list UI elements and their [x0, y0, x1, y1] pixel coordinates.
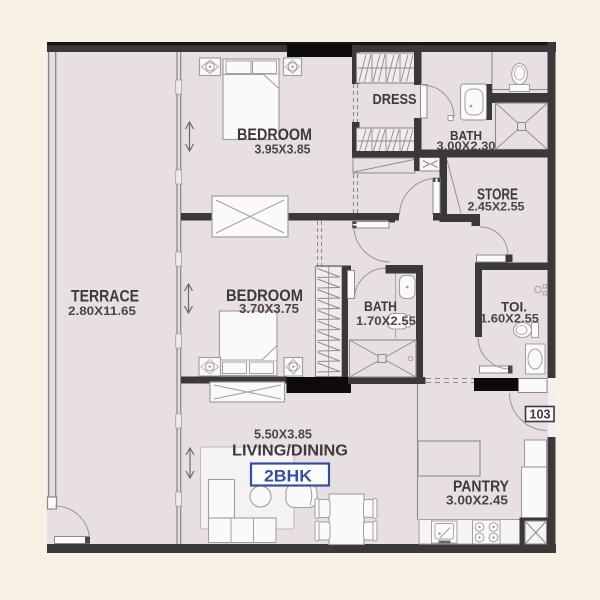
- svg-text:TOI.: TOI.: [501, 298, 527, 314]
- svg-text:3.95X3.85: 3.95X3.85: [255, 142, 311, 156]
- svg-text:BATH: BATH: [364, 298, 397, 314]
- svg-text:TERRACE: TERRACE: [71, 287, 139, 305]
- svg-text:LIVING/DINING: LIVING/DINING: [232, 443, 348, 460]
- svg-text:BEDROOM: BEDROOM: [237, 125, 312, 144]
- svg-text:3.70X3.75: 3.70X3.75: [239, 302, 299, 316]
- svg-text:1.60X2.55: 1.60X2.55: [480, 314, 540, 326]
- svg-text:103: 103: [530, 407, 551, 421]
- svg-text:1.70X2.55: 1.70X2.55: [356, 314, 416, 328]
- svg-text:3.00X2.45: 3.00X2.45: [446, 493, 508, 507]
- svg-text:2.45X2.55: 2.45X2.55: [468, 202, 526, 214]
- svg-text:DRESS: DRESS: [373, 92, 417, 108]
- svg-text:2BHK: 2BHK: [264, 466, 313, 485]
- svg-text:2.80X11.65: 2.80X11.65: [68, 306, 137, 318]
- svg-text:5.50X3.85: 5.50X3.85: [254, 427, 312, 441]
